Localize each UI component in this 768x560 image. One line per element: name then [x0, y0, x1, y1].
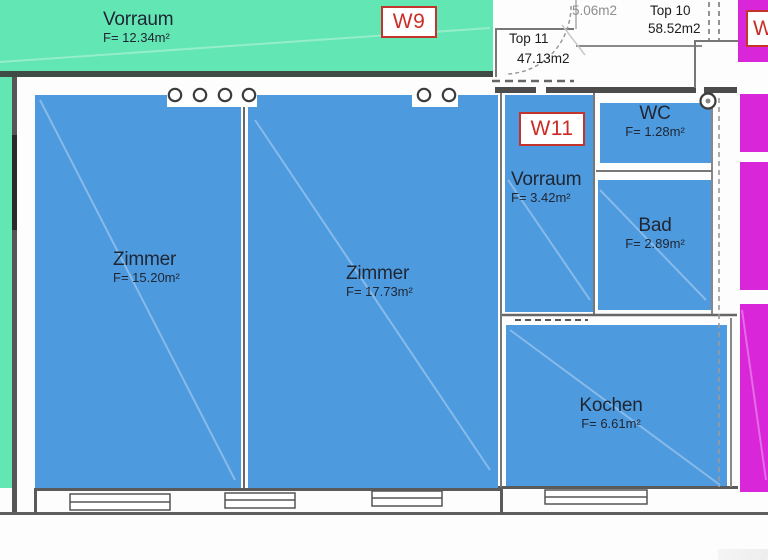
- wall-segment: [0, 512, 768, 515]
- wall-segment: [36, 488, 501, 491]
- region-zimmer-1: [35, 95, 241, 488]
- watermark: [718, 549, 768, 560]
- label-top10-name: Top 10: [650, 3, 691, 18]
- region-adjacent-unit-2: [740, 94, 768, 152]
- region-adjacent-unit-3: [740, 162, 768, 290]
- floorplan-canvas: Vorraum F= 12.34m² W9 Top 11 47.13m2 5.0…: [0, 0, 768, 560]
- label-small-room-area: 5.06m2: [572, 3, 617, 18]
- badge-w11: W11: [519, 112, 585, 146]
- window-symbols: [70, 490, 647, 510]
- region-wc: [600, 103, 712, 163]
- badge-adjacent-unit: W: [746, 10, 768, 47]
- region-w9-left-strip: [0, 72, 12, 488]
- wall-segment: [12, 77, 17, 515]
- wall-segment: [495, 87, 737, 93]
- region-zimmer-2: [248, 95, 498, 488]
- region-bad: [598, 180, 712, 310]
- label-top11-name: Top 11: [509, 31, 549, 46]
- region-kochen: [506, 325, 727, 487]
- region-adjacent-unit-4: [740, 304, 768, 492]
- label-top10-area: 58.52m2: [648, 21, 701, 36]
- badge-w9: W9: [381, 6, 437, 38]
- label-top11-area: 47.13m2: [517, 51, 570, 66]
- wall-segment: [12, 135, 17, 230]
